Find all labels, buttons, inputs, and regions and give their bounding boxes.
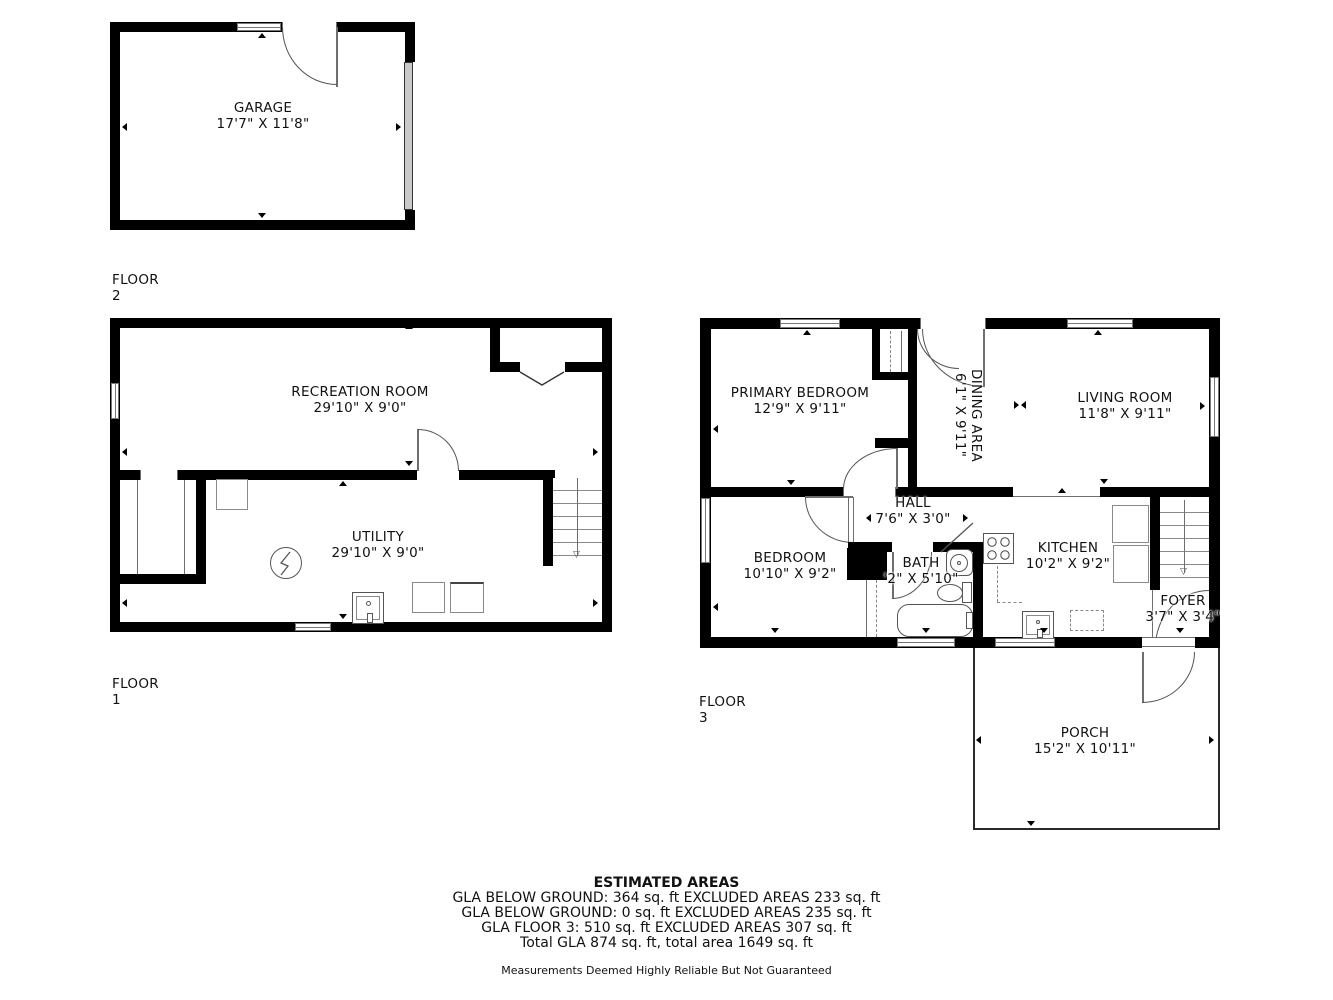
wall [1150,497,1160,590]
wall [543,470,553,566]
floor2-label: FLOOR 2 [112,272,159,304]
dimension-arrow [771,628,779,633]
room-label-kitchen: KITCHEN 10'2" X 9'2" [1026,541,1110,572]
room-label-bedroom: BEDROOM 10'10" X 9'2" [743,551,836,582]
room-dims: 11'8" X 9'11" [1077,407,1172,423]
stair-stringer-line [137,480,138,574]
room-label-primary-bedroom: PRIMARY BEDROOM 12'9" X 9'11" [731,386,869,417]
dimension-arrow [1100,479,1108,484]
room-name: PRIMARY BEDROOM [731,386,869,402]
wall [872,372,917,380]
kitchen-sink [1022,611,1054,639]
dimension-arrow [1027,821,1035,826]
room-dims: 3'7" X 3'4" [1145,610,1220,626]
wall [700,318,711,648]
room-label-garage: GARAGE 17'7" X 11'8" [216,101,309,132]
wall [196,480,206,584]
wall [110,574,206,584]
door-jamb [853,497,854,542]
wall [110,220,415,230]
dimension-arrow [339,614,347,619]
dimension-arrow [787,480,795,485]
dimension-arrow [1094,330,1102,335]
window [295,623,331,631]
room-label-porch: PORCH 15'2" X 10'11" [1034,726,1136,757]
opening-arrow [1021,401,1026,409]
dimension-arrow [405,461,413,466]
door-jamb [177,470,178,480]
room-dims: '2" X 5'10" [883,572,958,588]
dimension-arrow [976,736,981,744]
door-swing-arc [843,448,897,489]
room-label-hall: HALL 7'6" X 3'0" [875,496,950,527]
room-label-bath: BATH '2" X 5'10" [883,556,958,587]
counter [1113,545,1149,583]
gla-line: GLA BELOW GROUND: 0 sq. ft EXCLUDED AREA… [0,906,1333,921]
window [1067,319,1133,328]
dimension-arrow [396,123,401,131]
gla-total-line: Total GLA 874 sq. ft, total area 1649 sq… [0,936,1333,951]
dimension-arrow [713,425,718,433]
room-name: UTILITY [331,530,424,546]
stair-center-line [1184,500,1185,573]
opening-threshold-line [1142,637,1195,638]
dishwasher [1070,610,1104,631]
room-dims: 12'9" X 9'11" [731,402,869,418]
room-name: KITCHEN [1026,541,1110,557]
door-opening [417,470,459,480]
room-name: PORCH [1034,726,1136,742]
wall [110,22,120,230]
room-name: GARAGE [216,101,309,117]
door-swing-arc [805,497,853,543]
double-door-opening-icon [518,370,568,388]
dimension-arrow [122,123,127,131]
wall [110,318,612,328]
room-dims: 29'10" X 9'0" [331,546,424,562]
opening-arrow [1014,401,1019,409]
window [701,498,710,563]
counter-dashed-line [997,566,998,602]
window [237,23,281,31]
dimension-arrow [1040,628,1048,633]
opening-threshold-line [1142,646,1195,647]
stair-stringer-line [184,480,185,574]
stair-center-line [577,478,578,556]
tub-faucet [966,612,973,629]
opening-threshold-line [1013,496,1100,497]
room-dims: 10'2" X 9'2" [1026,557,1110,573]
stair-down-arrow: ▽ [1180,568,1187,577]
laundry-sink [352,592,384,624]
dimension-arrow [803,330,811,335]
wall [973,542,983,637]
appliance [412,582,445,613]
dimension-arrow [122,599,127,607]
estimated-areas-title: ESTIMATED AREAS [0,875,1333,891]
dimension-arrow [1209,736,1214,744]
room-name: HALL [875,496,950,512]
room-name: FOYER [1145,594,1220,610]
closet-line [866,580,867,637]
disclaimer: Measurements Deemed Highly Reliable But … [0,964,1333,977]
room-label-dining: DINING AREA 6'1" X 9'11" [952,368,984,462]
door-jamb [140,470,141,480]
dimension-arrow [922,628,930,633]
floor1-label: FLOOR 1 [112,676,159,708]
bathtub [897,604,973,637]
dimension-arrow [593,599,598,607]
stair-down-arrow: ▽ [573,551,580,560]
window [995,638,1055,647]
room-dims: 29'10" X 9'0" [291,401,428,417]
room-name: BATH [883,556,958,572]
room-dims: 10'10" X 9'2" [743,567,836,583]
refrigerator [1112,505,1149,543]
room-dims: 17'7" X 11'8" [216,117,309,133]
wall [875,438,917,448]
door-swing-arc [418,429,459,471]
dimension-arrow [1058,488,1066,493]
dimension-arrow [866,514,871,522]
dimension-arrow [963,514,968,522]
chimney [847,548,887,580]
closet-dashed-line [890,331,891,372]
water-heater-icon [269,546,303,580]
dimension-arrow [713,603,718,611]
toilet-tank [962,582,972,603]
appliance [450,582,484,613]
floorplan-canvas: GARAGE 17'7" X 11'8" FLOOR 2 ▽ [0,0,1333,1000]
room-label-living: LIVING ROOM 11'8" X 9'11" [1077,391,1172,422]
room-name: RECREATION ROOM [291,385,428,401]
gla-line: GLA BELOW GROUND: 364 sq. ft EXCLUDED AR… [0,891,1333,906]
dimension-arrow [593,448,598,456]
garage-door [404,62,413,210]
closet-dashed-line [876,580,877,637]
door-swing-arc [282,27,337,85]
dimension-arrow [258,213,266,218]
room-name: BEDROOM [743,551,836,567]
gla-line: GLA FLOOR 3: 510 sq. ft EXCLUDED AREAS 3… [0,921,1333,936]
room-label-foyer: FOYER 3'7" X 3'4" [1145,594,1220,625]
window [1210,377,1219,437]
window [897,638,955,647]
entry-door-opening [920,318,986,329]
room-name: DINING AREA [968,368,984,462]
stove-icon [983,533,1014,564]
floor3-label: FLOOR 3 [699,694,746,726]
room-label-utility: UTILITY 29'10" X 9'0" [331,530,424,561]
dimension-arrow [122,448,127,456]
drain-dot [366,601,371,606]
door-jamb [985,318,986,329]
appliance [216,479,248,510]
room-dims: 6'1" X 9'11" [952,368,968,462]
wall [1100,487,1209,497]
wall [908,380,917,438]
dimension-arrow [1200,402,1205,410]
dimension-arrow [258,33,266,38]
faucet [367,613,373,623]
window [780,319,840,328]
closet-shelf-line [901,331,902,372]
estimated-areas-block: ESTIMATED AREAS GLA BELOW GROUND: 364 sq… [0,875,1333,977]
window [111,383,119,419]
closet-opening [140,470,178,480]
room-name: LIVING ROOM [1077,391,1172,407]
dimension-arrow [405,324,413,329]
door-jamb [920,318,921,329]
room-dims: 7'6" X 3'0" [875,512,950,528]
dimension-arrow [1176,628,1184,633]
counter-dashed-line [997,602,1022,603]
room-dims: 15'2" X 10'11" [1034,742,1136,758]
dimension-arrow [339,481,347,486]
drain-dot [1036,620,1040,624]
door-swing-arc [917,329,959,369]
room-label-recreation: RECREATION ROOM 29'10" X 9'0" [291,385,428,416]
